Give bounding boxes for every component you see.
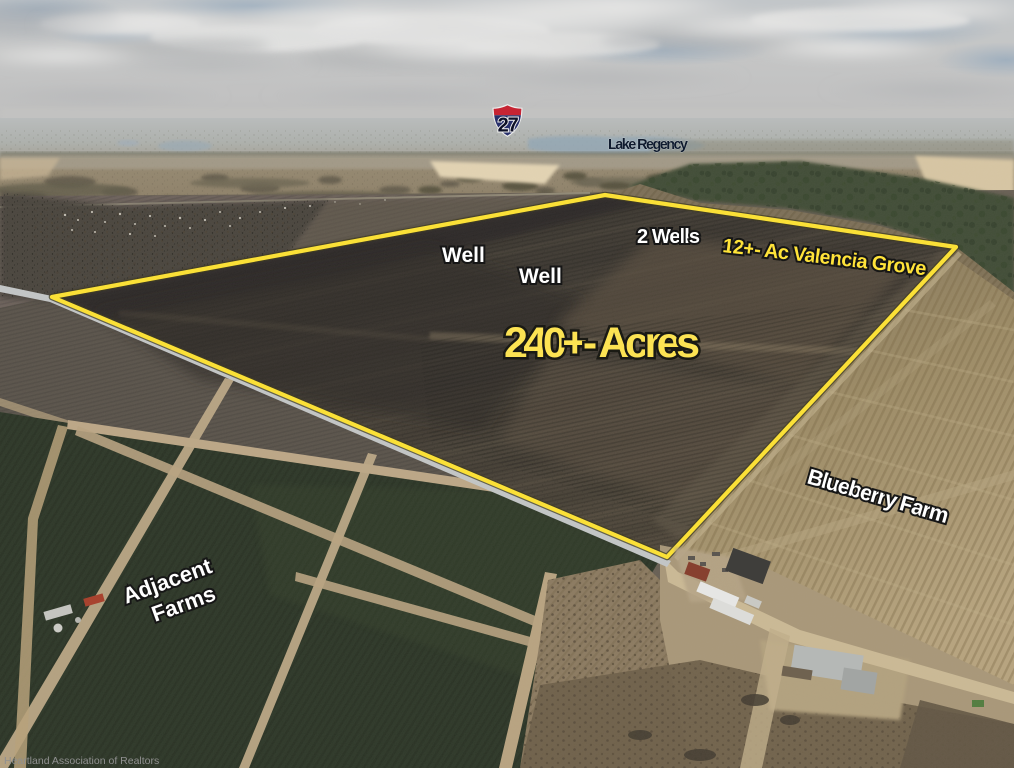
svg-text:Well: Well: [519, 265, 562, 288]
svg-text:Well: Well: [442, 244, 485, 267]
svg-text:Lake Regency: Lake Regency: [608, 137, 688, 153]
svg-text:27: 27: [498, 115, 519, 137]
svg-text:Heartland Association of Realt: Heartland Association of Realtors: [4, 755, 159, 767]
svg-text:240+- Acres: 240+- Acres: [504, 319, 700, 367]
svg-text:2 Wells: 2 Wells: [637, 226, 700, 248]
